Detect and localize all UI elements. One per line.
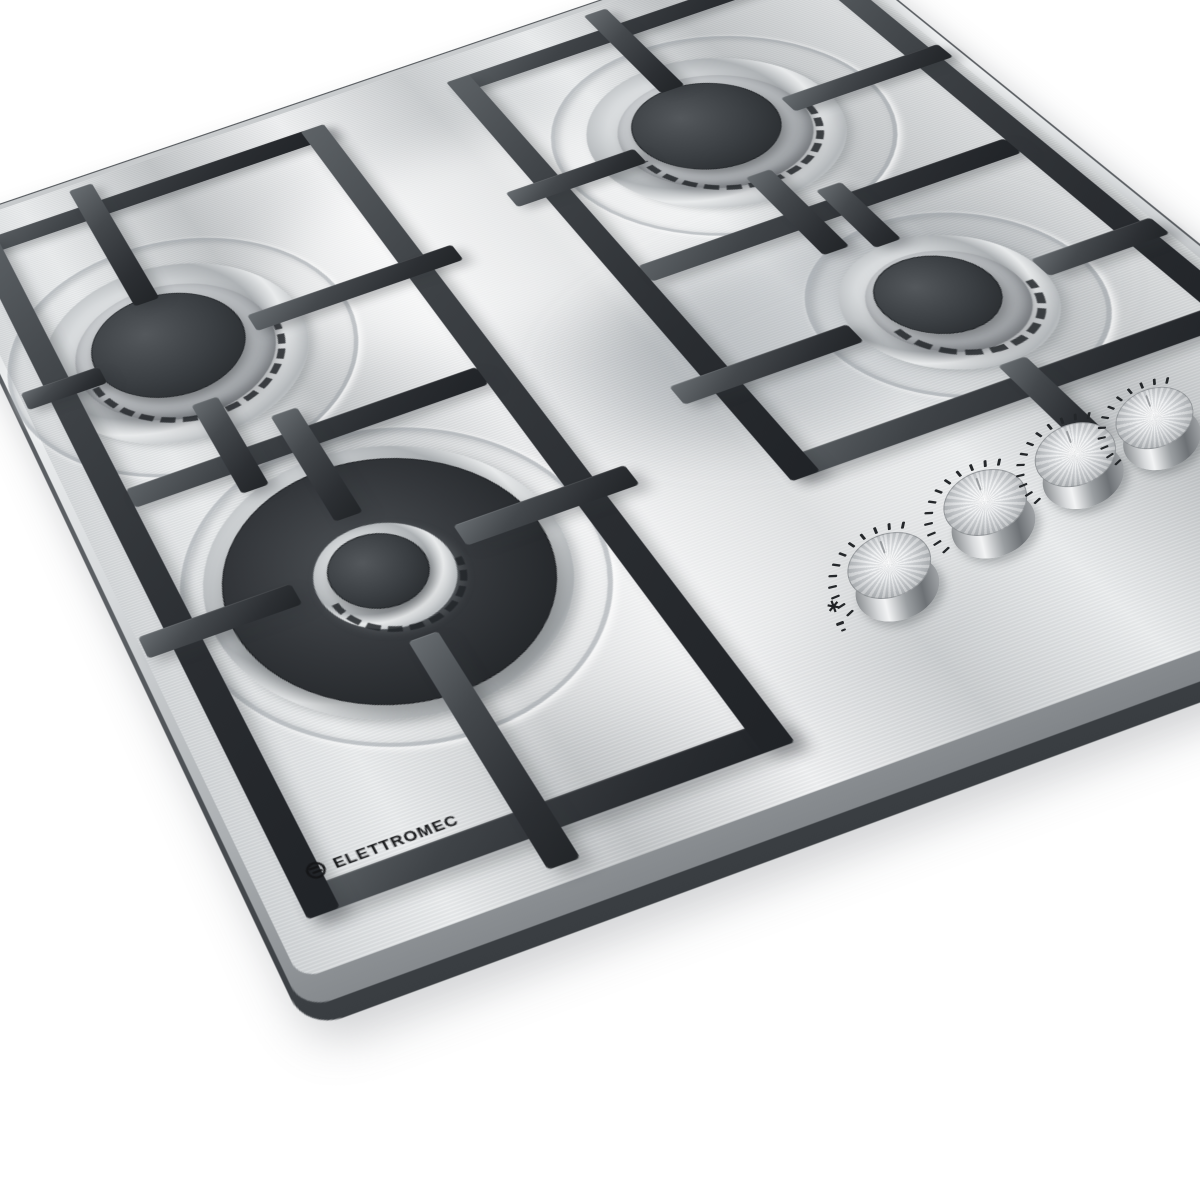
dial-tick <box>1101 416 1110 419</box>
dial-tick <box>1098 426 1106 429</box>
product-photo-stage: ELETTROMEC ∗ <box>0 0 1200 1200</box>
dial-tick <box>1073 413 1076 420</box>
dial-tick <box>1153 378 1156 385</box>
dial-tick <box>983 460 986 467</box>
dial-tick <box>924 511 933 514</box>
dial-tick <box>831 563 840 566</box>
dial-tick <box>1019 452 1028 455</box>
dial-tick <box>828 574 837 577</box>
dial-tick <box>1016 463 1025 466</box>
dial-tick <box>887 523 890 530</box>
dial-tick <box>927 500 936 503</box>
